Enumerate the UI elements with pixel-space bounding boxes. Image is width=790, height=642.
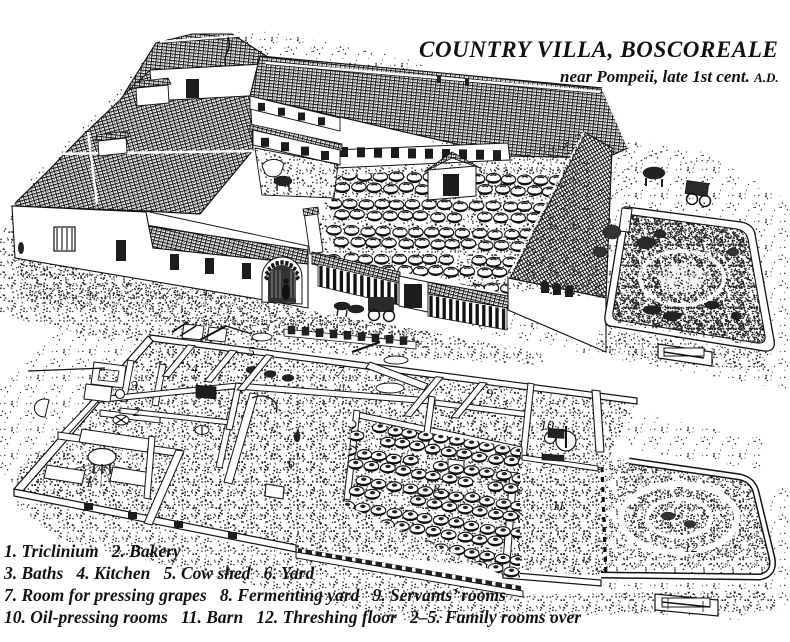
svg-text:3: 3 <box>130 379 138 394</box>
svg-text:COUNTRY VILLA, BOSCOREALE: COUNTRY VILLA, BOSCOREALE <box>419 37 778 62</box>
svg-text:10: 10 <box>540 419 554 434</box>
svg-text:7: 7 <box>337 365 345 380</box>
svg-text:6: 6 <box>288 456 295 471</box>
svg-text:9: 9 <box>486 387 493 402</box>
svg-text:1: 1 <box>85 476 92 491</box>
svg-text:5: 5 <box>248 345 255 360</box>
svg-text:7. Room for pressing grapes: 7. Room for pressing grapes 8. Fermentin… <box>4 585 506 605</box>
svg-text:4: 4 <box>191 362 198 377</box>
svg-text:8: 8 <box>433 482 440 497</box>
svg-text:10. Oil-pressing rooms 11. B: 10. Oil-pressing rooms 11. Barn 12. Thre… <box>4 607 581 627</box>
svg-text:3. Baths 4. Kitchen 5. Cow: 3. Baths 4. Kitchen 5. Cow shed 6. Yard <box>3 563 314 583</box>
svg-text:12: 12 <box>684 541 698 556</box>
svg-text:2: 2 <box>133 405 140 420</box>
svg-text:11: 11 <box>552 499 565 514</box>
svg-text:near Pompeii, late 1st cent. A: near Pompeii, late 1st cent. A.D. <box>560 67 779 86</box>
svg-text:1. Triclinium 2. Bakery: 1. Triclinium 2. Bakery <box>4 541 181 561</box>
